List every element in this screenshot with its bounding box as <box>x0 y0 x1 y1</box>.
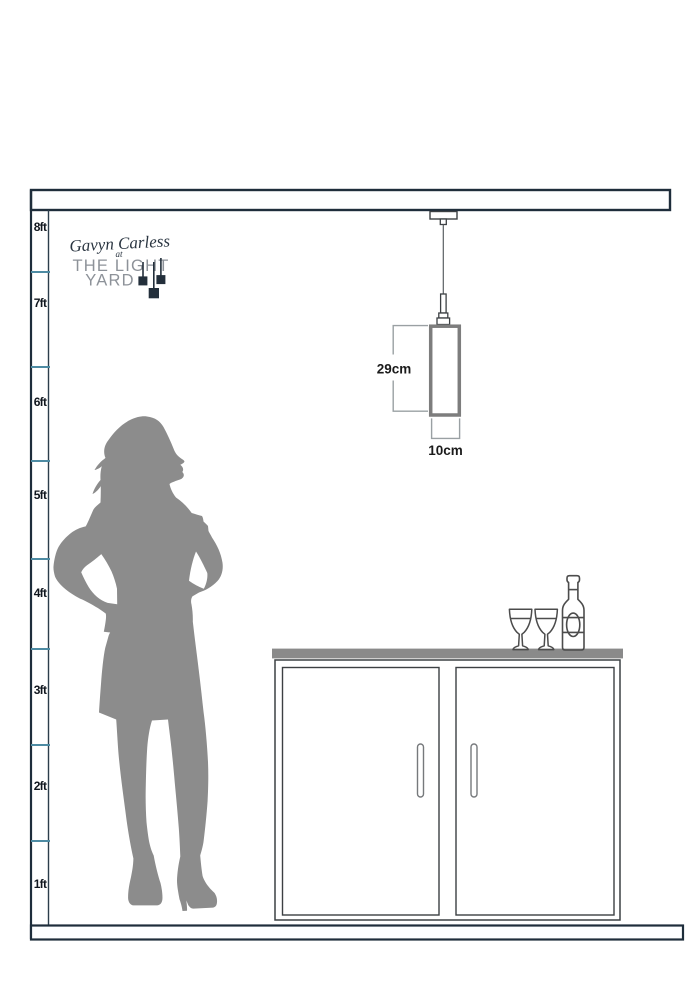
svg-text:29cm: 29cm <box>377 362 412 377</box>
svg-text:5ft: 5ft <box>34 488 47 502</box>
svg-text:YARD: YARD <box>85 272 134 290</box>
svg-text:6ft: 6ft <box>34 395 47 409</box>
svg-text:3ft: 3ft <box>34 683 47 697</box>
svg-text:10cm: 10cm <box>428 443 463 458</box>
svg-text:4ft: 4ft <box>34 586 47 600</box>
svg-text:8ft: 8ft <box>34 220 47 234</box>
svg-text:2ft: 2ft <box>34 779 47 793</box>
svg-text:7ft: 7ft <box>34 296 47 310</box>
svg-text:1ft: 1ft <box>34 877 47 891</box>
